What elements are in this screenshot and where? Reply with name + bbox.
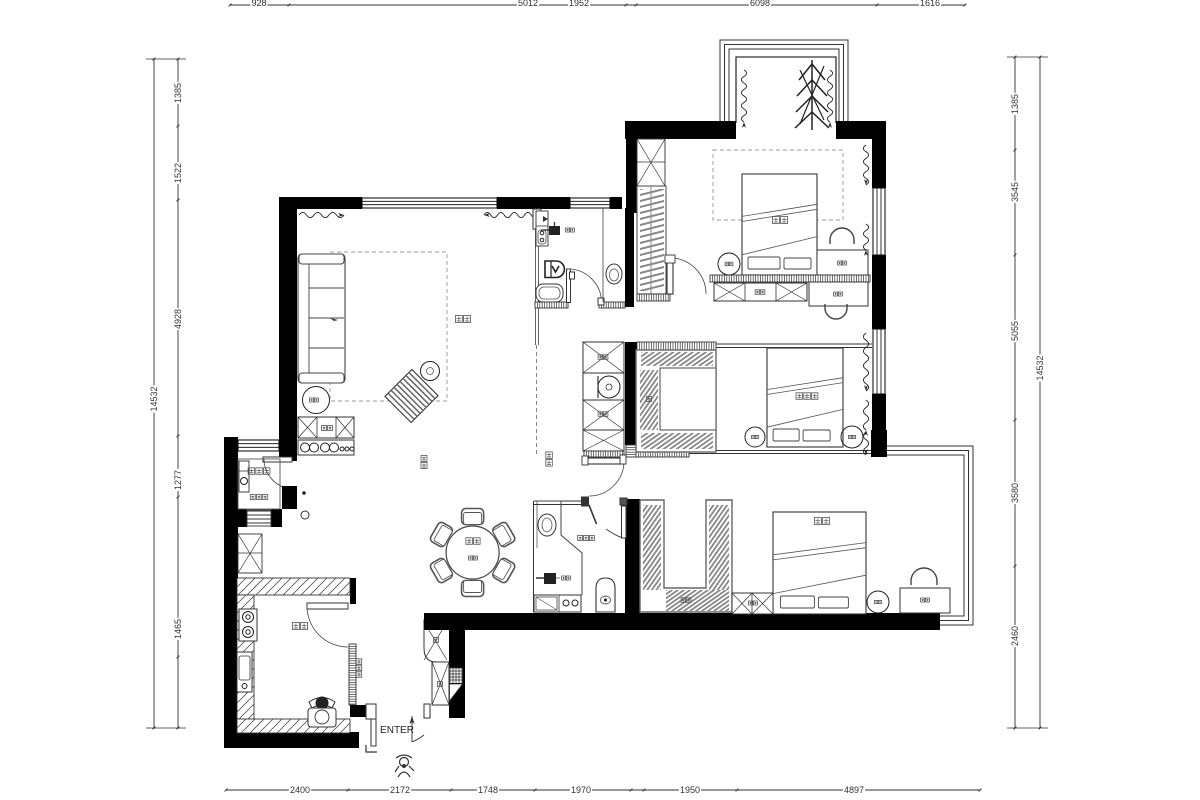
svg-text:1277: 1277	[173, 470, 183, 490]
svg-text:6098: 6098	[750, 0, 770, 8]
svg-text:4928: 4928	[173, 309, 183, 329]
svg-text:2400: 2400	[290, 785, 310, 795]
svg-text:1950: 1950	[680, 785, 700, 795]
svg-text:1748: 1748	[478, 785, 498, 795]
svg-text:2460: 2460	[1010, 626, 1020, 646]
svg-text:ENTER: ENTER	[380, 725, 414, 736]
svg-text:3580: 3580	[1010, 483, 1020, 503]
svg-text:14532: 14532	[149, 386, 159, 411]
svg-text:1970: 1970	[571, 785, 591, 795]
svg-text:2172: 2172	[390, 785, 410, 795]
svg-text:1385: 1385	[173, 83, 183, 103]
svg-text:14532: 14532	[1035, 355, 1045, 380]
svg-text:1522: 1522	[173, 163, 183, 183]
svg-text:5055: 5055	[1010, 321, 1020, 341]
svg-text:1952: 1952	[569, 0, 589, 8]
svg-text:4897: 4897	[844, 785, 864, 795]
svg-text:1385: 1385	[1010, 94, 1020, 114]
svg-text:5012: 5012	[518, 0, 538, 8]
svg-text:1465: 1465	[173, 619, 183, 639]
svg-text:3545: 3545	[1010, 182, 1020, 202]
svg-text:928: 928	[251, 0, 266, 8]
svg-text:1616: 1616	[920, 0, 940, 8]
